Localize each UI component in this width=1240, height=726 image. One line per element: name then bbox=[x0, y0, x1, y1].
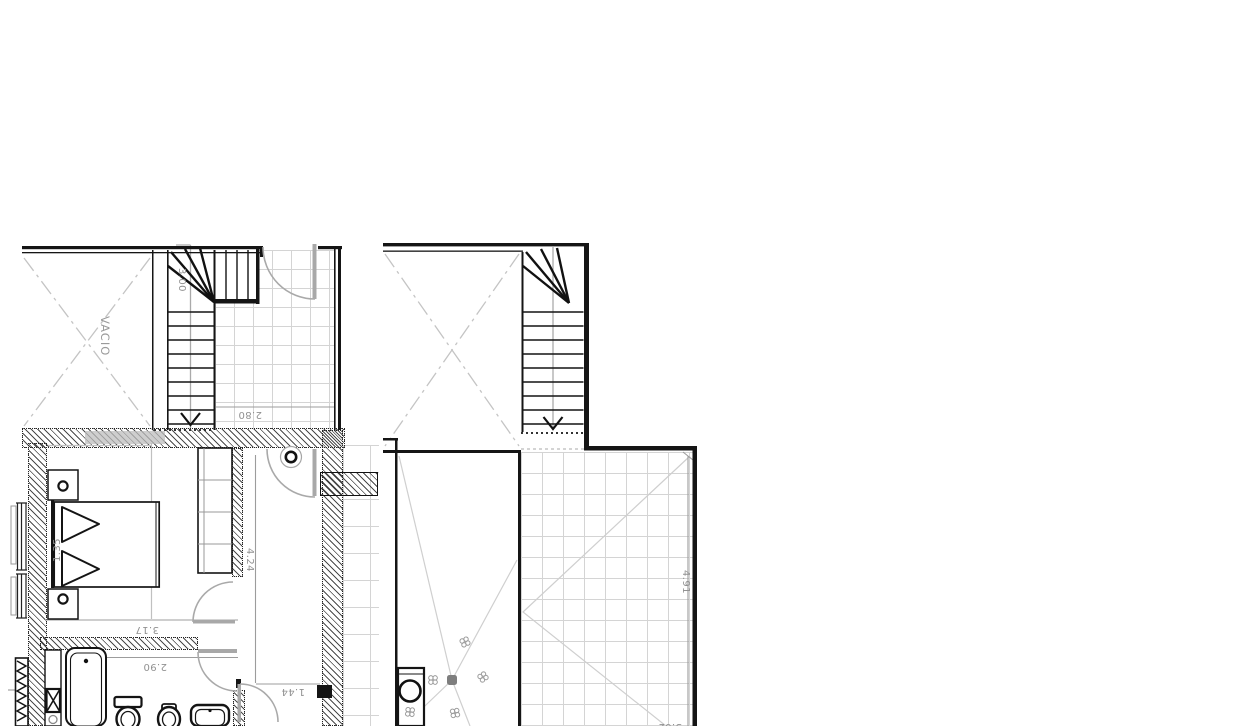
door-leaf bbox=[313, 244, 317, 299]
stair-dim-label: 3.00 bbox=[176, 268, 186, 292]
slope-lines bbox=[399, 456, 690, 726]
laundry-cabinet bbox=[45, 650, 61, 726]
bed-dim-label: 1.35 bbox=[53, 538, 63, 562]
nightstand-bottom bbox=[48, 589, 78, 619]
bathroom-width-label: 2.90 bbox=[134, 661, 176, 671]
door-leaf bbox=[313, 449, 317, 496]
door-leaf bbox=[198, 649, 237, 653]
door-leaf bbox=[238, 684, 242, 722]
ceiling-lamp bbox=[281, 447, 302, 468]
void-cross-left bbox=[24, 258, 150, 426]
door-arc bbox=[193, 582, 233, 622]
bathtub bbox=[66, 648, 106, 726]
plan-linework bbox=[0, 0, 1240, 726]
void-label: VACIO bbox=[100, 316, 110, 356]
radiator bbox=[16, 658, 29, 726]
laundry-dim-label: 2.80 bbox=[230, 409, 270, 419]
nightstand-top bbox=[48, 470, 78, 500]
sink bbox=[191, 705, 229, 726]
bedroom-depth-label: 4.24 bbox=[244, 548, 254, 572]
window bbox=[16, 503, 27, 618]
window-sill bbox=[11, 506, 16, 615]
door-arc bbox=[263, 247, 315, 299]
void-cross-right bbox=[385, 254, 519, 446]
plant-symbol bbox=[448, 706, 462, 720]
plant-symbol bbox=[477, 671, 489, 683]
stair-right bbox=[521, 247, 584, 449]
drain-dot bbox=[84, 659, 88, 663]
plant-symbol bbox=[426, 673, 441, 688]
bidet bbox=[158, 704, 180, 726]
wardrobe bbox=[198, 448, 232, 573]
terrace-width-label: 3.62 bbox=[648, 721, 692, 726]
terrace-depth-label: 4.91 bbox=[680, 570, 690, 594]
bedroom-width-label: 3.17 bbox=[126, 624, 168, 634]
floor-plan-canvas: VACIO 3.00 2.80 1.35 3.17 2.90 1.44 4.24… bbox=[0, 0, 1240, 726]
hall-width-label: 1.44 bbox=[272, 686, 314, 696]
floor-drain bbox=[447, 675, 457, 685]
counter-sink bbox=[398, 668, 424, 726]
toilet bbox=[115, 697, 142, 726]
structural-walls bbox=[22, 243, 697, 726]
bed bbox=[51, 500, 159, 588]
door-leaf bbox=[193, 620, 235, 624]
